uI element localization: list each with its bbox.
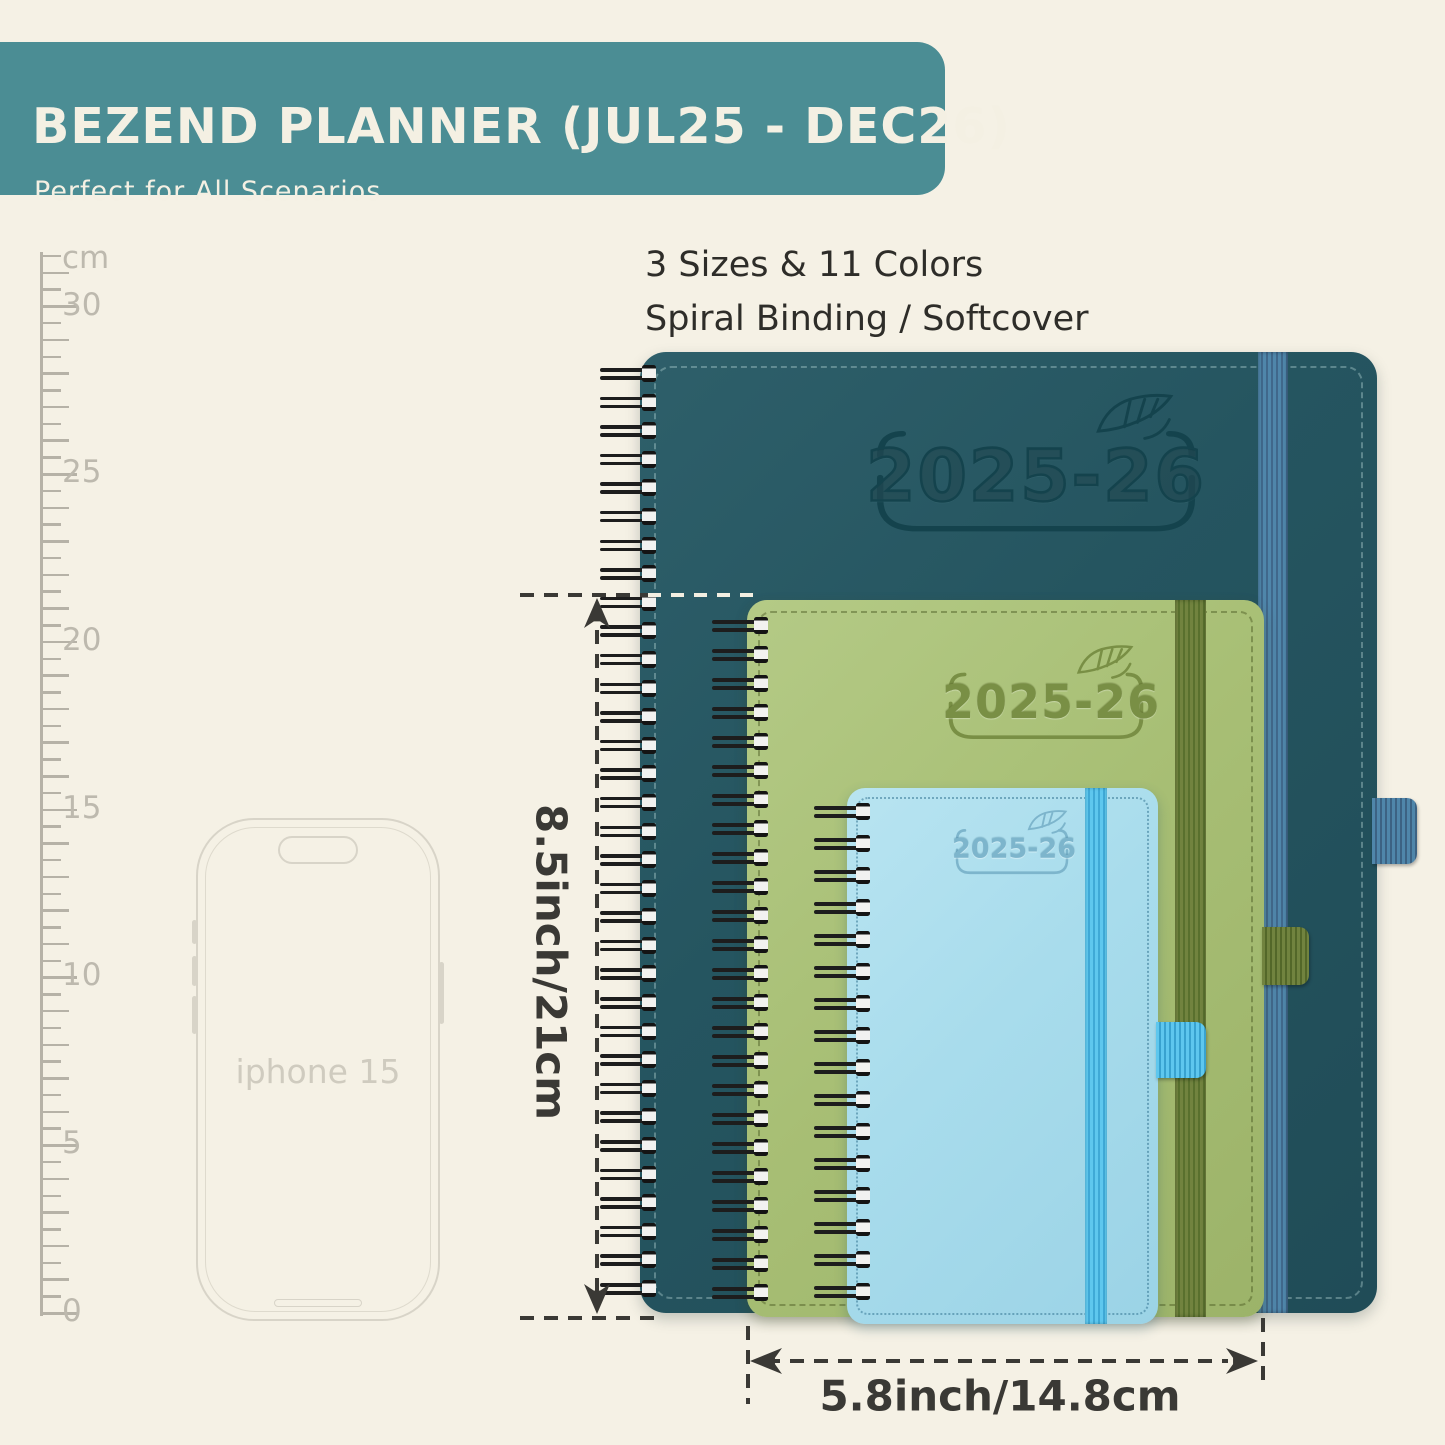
spiral-coil: [712, 759, 772, 788]
spiral-coil: [712, 730, 772, 759]
ruler-tick: [43, 389, 61, 392]
iphone-outline: iphone 15: [196, 818, 440, 1321]
spiral-coil: [600, 762, 660, 791]
spiral-coil: [814, 1280, 874, 1312]
spiral-coil: [600, 362, 660, 391]
spiral-coil: [600, 1277, 660, 1306]
spiral-coil: [712, 1107, 772, 1136]
ruler-tick: [43, 658, 61, 661]
height-extension-line-bottom: [520, 1316, 662, 1320]
ruler-tick: [43, 842, 69, 845]
spiral-coil: [814, 1248, 874, 1280]
spiral-coil: [600, 391, 660, 420]
spiral-coil: [600, 677, 660, 706]
spiral-coil: [712, 701, 772, 730]
spiral-coil: [600, 1105, 660, 1134]
spiral-coil: [600, 1191, 660, 1220]
iphone-volume-down-button: [192, 996, 197, 1034]
planner-medium-elastic-band: [1175, 600, 1206, 1317]
width-dimension-label: 5.8inch/14.8cm: [819, 1372, 1180, 1421]
spiral-coil: [712, 991, 772, 1020]
planner-small-pen-loop: [1156, 1022, 1206, 1078]
spiral-coil: [814, 864, 874, 896]
width-dimension-line: [766, 1359, 1228, 1363]
ruler-label-20: 20: [62, 622, 101, 658]
product-title: BEZEND PLANNER (JUL25 - DEC26): [32, 98, 1011, 155]
ruler-tick: [43, 876, 69, 879]
spiral-coil: [712, 1049, 772, 1078]
spiral-coil: [600, 820, 660, 849]
spiral-coil: [600, 419, 660, 448]
feather-icon: [1092, 392, 1180, 450]
ruler-tick: [43, 993, 61, 996]
spiral-coil: [712, 614, 772, 643]
spiral-coil: [600, 934, 660, 963]
ruler-tick: [43, 1245, 69, 1248]
planner-large-pen-loop: [1372, 798, 1417, 864]
spiral-coil: [712, 1078, 772, 1107]
iphone-power-button: [439, 962, 444, 1024]
spiral-coil: [600, 562, 660, 591]
spiral-coil: [712, 1020, 772, 1049]
spiral-coil: [814, 1088, 874, 1120]
spiral-coil: [600, 962, 660, 991]
ruler-tick: [43, 288, 61, 291]
ruler-tick: [43, 1127, 61, 1130]
spiral-coil: [712, 643, 772, 672]
spiral-coil: [712, 1165, 772, 1194]
ruler-unit-label: cm: [62, 240, 109, 276]
spiral-coil: [814, 1216, 874, 1248]
planner-large-logo: 2025-26: [866, 424, 1206, 536]
planner-medium-pen-loop: [1262, 927, 1309, 985]
ruler-tick: [43, 624, 61, 627]
spiral-coil: [814, 896, 874, 928]
iphone-label: iphone 15: [198, 1052, 438, 1091]
spiral-coil: [712, 962, 772, 991]
height-dimension-line: [595, 606, 599, 1306]
planner-large-spiral-binding: [600, 362, 660, 1306]
ruler-tick: [43, 674, 69, 677]
ruler-label-0: 0: [62, 1293, 82, 1329]
width-extension-line-left: [746, 1326, 750, 1404]
ruler-tick: [43, 1077, 69, 1080]
spiral-coil: [814, 1120, 874, 1152]
ruler-label-30: 30: [62, 287, 101, 323]
feather-icon: [1026, 809, 1070, 839]
ruler-tick: [43, 1228, 61, 1231]
ruler-label-10: 10: [62, 957, 101, 993]
iphone-volume-up-button: [192, 956, 197, 986]
spiral-coil: [814, 1152, 874, 1184]
spiral-coil: [712, 1136, 772, 1165]
feather-icon: [1074, 644, 1138, 686]
spiral-coil: [712, 1252, 772, 1281]
spiral-coil: [712, 846, 772, 875]
ruler-tick: [43, 590, 61, 593]
title-banner: BEZEND PLANNER (JUL25 - DEC26) Perfect f…: [0, 42, 945, 195]
feature-text: 3 Sizes & 11 Colors Spiral Binding / Sof…: [645, 238, 1089, 346]
spiral-coil: [712, 933, 772, 962]
spiral-coil: [712, 875, 772, 904]
ruler-tick: [43, 255, 61, 258]
spiral-coil: [814, 1184, 874, 1216]
spiral-coil: [600, 848, 660, 877]
spiral-coil: [600, 1134, 660, 1163]
ruler-label-5: 5: [62, 1125, 82, 1161]
ruler-tick: [43, 1178, 69, 1181]
spiral-coil: [600, 791, 660, 820]
spiral-coil: [814, 992, 874, 1024]
spiral-coil: [600, 1020, 660, 1049]
ruler-label-15: 15: [62, 790, 101, 826]
spiral-coil: [712, 788, 772, 817]
spiral-coil: [600, 648, 660, 677]
ruler-tick: [43, 356, 61, 359]
product-subtitle: Perfect for All Scenarios: [34, 176, 381, 207]
spiral-coil: [814, 832, 874, 864]
ruler-tick: [43, 859, 61, 862]
planner-small-spiral-binding: [814, 800, 874, 1312]
planner-small-elastic-band: [1085, 788, 1107, 1324]
feature-line-binding: Spiral Binding / Softcover: [645, 292, 1089, 346]
ruler-tick: [43, 456, 61, 459]
feature-line-sizes: 3 Sizes & 11 Colors: [645, 238, 1089, 292]
dynamic-island-icon: [278, 836, 358, 864]
ruler-tick: [43, 574, 69, 577]
ruler-tick: [43, 1262, 61, 1265]
spiral-coil: [712, 1281, 772, 1310]
spiral-coil: [712, 1223, 772, 1252]
ruler-tick: [43, 557, 61, 560]
ruler-tick: [43, 758, 61, 761]
spiral-coil: [600, 1248, 660, 1277]
spiral-coil: [814, 1056, 874, 1088]
ruler-tick: [43, 741, 69, 744]
ruler-tick: [43, 507, 69, 510]
spiral-coil: [814, 928, 874, 960]
ruler-tick: [43, 1195, 61, 1198]
width-extension-line-right: [1261, 1318, 1265, 1388]
ruler-tick: [43, 372, 69, 375]
ruler-tick: [43, 423, 61, 426]
spiral-coil: [600, 448, 660, 477]
iphone-action-button: [192, 920, 197, 944]
spiral-coil: [600, 505, 660, 534]
spiral-coil: [600, 1048, 660, 1077]
spiral-coil: [600, 534, 660, 563]
ruler-tick: [43, 775, 69, 778]
spiral-coil: [600, 877, 660, 906]
ruler-tick: [43, 1060, 61, 1063]
ruler-tick: [43, 1094, 61, 1097]
ruler-tick: [43, 1010, 69, 1013]
ruler-tick: [43, 825, 61, 828]
spiral-coil: [712, 672, 772, 701]
height-extension-line-top-on-cover: [648, 593, 754, 597]
height-extension-line-top: [520, 593, 648, 597]
spiral-coil: [600, 476, 660, 505]
ruler-tick: [43, 1295, 61, 1298]
width-arrow-right-icon: [1226, 1348, 1258, 1374]
spiral-coil: [600, 619, 660, 648]
ruler-tick: [43, 926, 61, 929]
ruler-tick: [43, 1111, 69, 1114]
ruler-line: [40, 252, 43, 1316]
ruler-tick: [43, 909, 69, 912]
spiral-coil: [600, 705, 660, 734]
ruler-label-25: 25: [62, 454, 101, 490]
ruler-tick: [43, 322, 61, 325]
spiral-coil: [712, 904, 772, 933]
ruler-tick: [43, 943, 69, 946]
ruler-tick: [43, 607, 69, 610]
ruler-tick: [43, 1027, 61, 1030]
spiral-coil: [712, 1194, 772, 1223]
ruler-tick: [43, 725, 61, 728]
ruler-tick: [43, 523, 61, 526]
iphone-bottom-bar: [274, 1299, 362, 1307]
ruler-tick: [43, 406, 69, 409]
ruler-tick: [43, 439, 69, 442]
ruler-tick: [43, 1211, 69, 1214]
spiral-coil: [814, 960, 874, 992]
spiral-coil: [600, 991, 660, 1020]
spiral-coil: [600, 905, 660, 934]
ruler-tick: [43, 339, 69, 342]
spiral-coil: [814, 1024, 874, 1056]
height-dimension-label: 8.5inch/21cm: [527, 804, 576, 1120]
planner-medium-logo: 2025-26: [942, 668, 1150, 742]
ruler-tick: [43, 1161, 61, 1164]
ruler-tick: [43, 540, 69, 543]
ruler-tick: [43, 1044, 69, 1047]
product-image: BEZEND PLANNER (JUL25 - DEC26) Perfect f…: [0, 0, 1445, 1445]
ruler-tick: [43, 893, 61, 896]
spiral-coil: [600, 1163, 660, 1192]
spiral-coil: [600, 1077, 660, 1106]
ruler-tick: [43, 1278, 69, 1281]
ruler-tick: [43, 792, 61, 795]
ruler-tick: [43, 960, 61, 963]
planner-small-logo: 2025-26: [952, 826, 1072, 876]
planner-medium-spiral-binding: [712, 614, 772, 1310]
spiral-coil: [600, 734, 660, 763]
ruler-tick: [43, 708, 69, 711]
spiral-coil: [600, 1220, 660, 1249]
ruler-tick: [43, 490, 61, 493]
ruler-tick: [43, 691, 61, 694]
spiral-coil: [712, 817, 772, 846]
spiral-coil: [814, 800, 874, 832]
